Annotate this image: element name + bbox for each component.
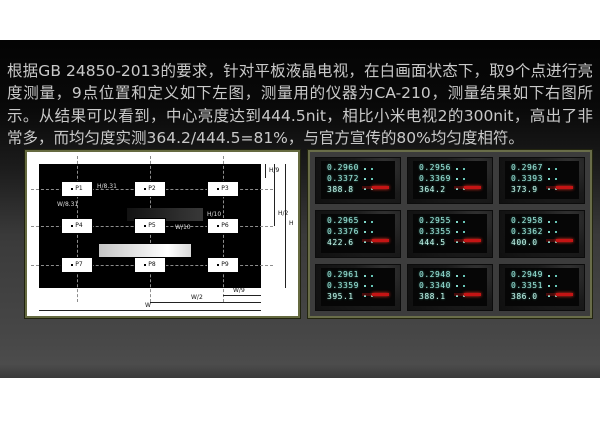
dim-line — [285, 164, 286, 288]
chromaticity-x-value: 0.2961 — [327, 269, 359, 280]
point-dot-icon — [144, 188, 146, 190]
meter-photo: 0.29550.3355444.5 — [407, 210, 493, 257]
point-label: P7 — [75, 262, 82, 268]
meter-lcd-display: 0.29670.3393373.9 — [505, 161, 579, 199]
chromaticity-x-value: 0.2948 — [419, 269, 451, 280]
dim-label-box-h: H/8.31 — [97, 183, 117, 190]
measure-point-box: P3 — [207, 181, 239, 197]
chromaticity-y-value: 0.3351 — [511, 280, 543, 291]
dim-label-h9: H/9 — [269, 167, 279, 174]
meter-photo: 0.29580.3362400.0 — [499, 210, 585, 257]
dim-label-w2: W/2 — [191, 294, 203, 301]
meter-photo: 0.29600.3372388.8 — [315, 157, 401, 204]
nine-point-diagram-figure: P1 P2 P3 P4 P5 P6 P7 P8 P9 H/9 H/2 H W/9… — [25, 150, 300, 318]
point-dot-icon — [217, 264, 219, 266]
red-indicator-bar — [464, 186, 481, 189]
point-dot-icon — [71, 225, 73, 227]
point-dot-icon — [217, 225, 219, 227]
slide-background: 根据GB 24850-2013的要求，针对平板液晶电视，在白画面状态下，取9个点… — [0, 40, 600, 378]
meter-photo: 0.29650.3376422.6 — [315, 210, 401, 257]
measure-point-box: P4 — [61, 218, 93, 234]
meter-lcd-display: 0.29580.3362400.0 — [505, 214, 579, 252]
measure-point-box: P7 — [61, 257, 93, 273]
chromaticity-y-value: 0.3359 — [327, 280, 359, 291]
point-label: P8 — [148, 262, 155, 268]
point-dot-icon — [71, 188, 73, 190]
red-indicator-bar — [372, 293, 389, 296]
measure-point-box: P2 — [134, 181, 166, 197]
chromaticity-y-value: 0.3355 — [419, 226, 451, 237]
chromaticity-x-value: 0.2956 — [419, 162, 451, 173]
dim-line — [39, 310, 261, 311]
meter-lcd-display: 0.29650.3376422.6 — [321, 214, 395, 252]
meter-lcd-display: 0.29480.3340388.1 — [413, 268, 487, 306]
dim-line — [265, 164, 266, 178]
chromaticity-y-value: 0.3372 — [327, 173, 359, 184]
indicator-dots-icon — [364, 221, 366, 223]
luminance-value: 388.1 — [419, 291, 451, 302]
chromaticity-y-value: 0.3369 — [419, 173, 451, 184]
dim-label-h2: H/2 — [278, 210, 288, 217]
point-dot-icon — [217, 188, 219, 190]
indicator-dots-icon — [364, 168, 366, 170]
indicator-dots-icon — [364, 275, 366, 277]
measure-point-box: P6 — [207, 218, 239, 234]
meter-lcd-display: 0.29560.3369364.2 — [413, 161, 487, 199]
chromaticity-y-value: 0.3393 — [511, 173, 543, 184]
point-label: P6 — [221, 223, 228, 229]
chromaticity-x-value: 0.2960 — [327, 162, 359, 173]
indicator-dots-icon — [548, 275, 550, 277]
red-indicator-bar — [556, 293, 573, 296]
red-indicator-bar — [556, 186, 573, 189]
dim-label-w: W — [145, 302, 151, 309]
meter-lcd-display: 0.29490.3351386.0 — [505, 268, 579, 306]
dim-label-bar-h: H/10 — [207, 211, 221, 218]
red-indicator-bar — [464, 239, 481, 242]
meter-photo: 0.29560.3369364.2 — [407, 157, 493, 204]
dim-label-w9: W/9 — [233, 287, 245, 294]
point-dot-icon — [144, 225, 146, 227]
meter-photo: 0.29670.3393373.9 — [499, 157, 585, 204]
meter-results-figure: 0.29600.3372388.8 0.29560.3369364.2 0.29… — [308, 150, 592, 318]
point-dot-icon — [144, 264, 146, 266]
chromaticity-x-value: 0.2949 — [511, 269, 543, 280]
indicator-dots-icon — [456, 221, 458, 223]
meter-lcd-display: 0.29600.3372388.8 — [321, 161, 395, 199]
meter-lcd-display: 0.29610.3359395.1 — [321, 268, 395, 306]
chromaticity-x-value: 0.2955 — [419, 215, 451, 226]
luminance-value: 386.0 — [511, 291, 543, 302]
meter-photo: 0.29610.3359395.1 — [315, 264, 401, 311]
red-indicator-bar — [372, 186, 389, 189]
meter-lcd-display: 0.29550.3355444.5 — [413, 214, 487, 252]
chromaticity-y-value: 0.3340 — [419, 280, 451, 291]
point-label: P3 — [221, 186, 228, 192]
chromaticity-y-value: 0.3362 — [511, 226, 543, 237]
chromaticity-x-value: 0.2967 — [511, 162, 543, 173]
indicator-dots-icon — [548, 221, 550, 223]
luminance-value: 400.0 — [511, 237, 543, 248]
luminance-value: 388.8 — [327, 184, 359, 195]
chromaticity-x-value: 0.2958 — [511, 215, 543, 226]
luminance-value: 422.6 — [327, 237, 359, 248]
dim-label-h: H — [289, 220, 294, 227]
dim-label-bar-w: W/10 — [175, 224, 191, 231]
body-text: 根据GB 24850-2013的要求，针对平板液晶电视，在白画面状态下，取9个点… — [7, 60, 593, 150]
luminance-value: 373.9 — [511, 184, 543, 195]
measure-point-box: P9 — [207, 257, 239, 273]
indicator-dots-icon — [456, 275, 458, 277]
point-label: P9 — [221, 262, 228, 268]
measure-point-box: P5 — [134, 218, 166, 234]
dim-line — [150, 302, 261, 303]
dim-line — [223, 295, 261, 296]
dim-label-box-w: W/8.31 — [57, 201, 78, 208]
meter-photo-grid: 0.29600.3372388.8 0.29560.3369364.2 0.29… — [310, 152, 590, 316]
meter-photo: 0.29490.3351386.0 — [499, 264, 585, 311]
redacted-light-bar — [99, 244, 191, 257]
point-label: P4 — [75, 223, 82, 229]
meter-photo: 0.29480.3340388.1 — [407, 264, 493, 311]
red-indicator-bar — [556, 239, 573, 242]
red-indicator-bar — [464, 293, 481, 296]
point-label: P2 — [148, 186, 155, 192]
indicator-dots-icon — [548, 168, 550, 170]
measure-point-box: P1 — [61, 181, 93, 197]
chromaticity-y-value: 0.3376 — [327, 226, 359, 237]
point-label: P1 — [75, 186, 82, 192]
point-dot-icon — [71, 264, 73, 266]
chromaticity-x-value: 0.2965 — [327, 215, 359, 226]
point-label: P5 — [148, 223, 155, 229]
luminance-value: 364.2 — [419, 184, 451, 195]
red-indicator-bar — [372, 239, 389, 242]
measure-point-box: P8 — [134, 257, 166, 273]
luminance-value: 444.5 — [419, 237, 451, 248]
indicator-dots-icon — [456, 168, 458, 170]
luminance-value: 395.1 — [327, 291, 359, 302]
